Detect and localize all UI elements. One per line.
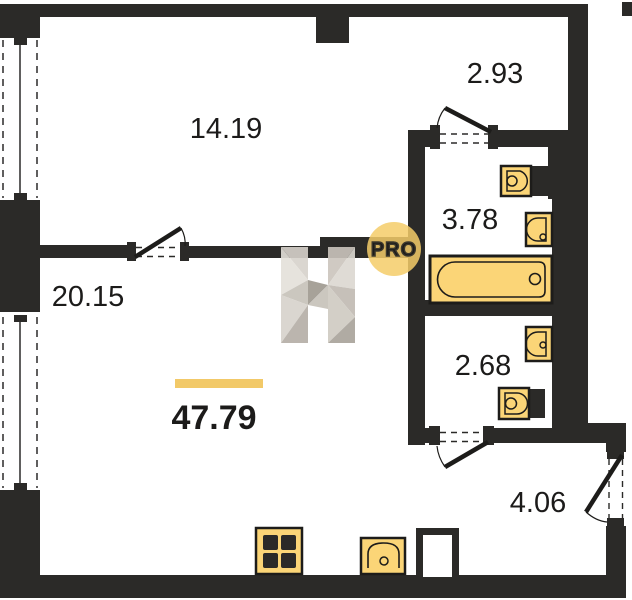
toilet-cistern bbox=[529, 389, 545, 418]
stove-icon bbox=[256, 528, 302, 578]
stove-burner-1 bbox=[263, 535, 278, 550]
bathtub-icon bbox=[430, 256, 552, 303]
wall-bath-inner-a bbox=[548, 147, 568, 199]
wall-top-center-stub bbox=[316, 4, 349, 43]
entry-door-arc bbox=[586, 512, 607, 522]
wall-top-right-stub bbox=[622, 2, 632, 16]
label-living-area: 14.19 bbox=[190, 113, 263, 145]
wall-right-step bbox=[568, 423, 626, 443]
wall-mid-a bbox=[40, 245, 133, 258]
kitchen-sink-icon bbox=[361, 538, 405, 578]
bath-door-leaf bbox=[445, 108, 491, 132]
stove-burner-4 bbox=[281, 553, 296, 568]
total-area-accent-bar bbox=[175, 379, 263, 388]
washbasin-counter bbox=[530, 166, 548, 196]
label-total-area: 47.79 bbox=[171, 399, 256, 437]
label-upper-hall-area: 2.93 bbox=[467, 58, 523, 90]
wall-wc-inner bbox=[552, 316, 568, 428]
wc-sink-icon bbox=[526, 327, 552, 361]
pro-badge-label: PRO bbox=[371, 239, 417, 261]
label-hallway-area: 4.06 bbox=[510, 487, 566, 519]
wall-bottom bbox=[0, 575, 626, 598]
pro-badge: PRO bbox=[367, 222, 421, 276]
entry-door-leaf bbox=[586, 455, 622, 512]
bath-door-opening bbox=[440, 134, 488, 143]
jamb-bath-door-left bbox=[430, 125, 440, 149]
jamb-room-door-left bbox=[127, 242, 136, 261]
window2-tick-top bbox=[14, 315, 27, 322]
shaft-void bbox=[423, 535, 452, 577]
washbasin-icon bbox=[501, 166, 548, 196]
wall-top-left-corner bbox=[0, 4, 40, 38]
wall-wc-bottom-b bbox=[494, 428, 568, 443]
wall-top bbox=[40, 4, 588, 17]
wall-wc-bottom-a bbox=[408, 428, 432, 443]
window2-tick-bottom bbox=[14, 483, 27, 490]
wall-left-middle bbox=[0, 200, 40, 312]
jamb-bath-door-right bbox=[488, 125, 498, 149]
wall-entry-bottom bbox=[606, 526, 626, 577]
label-wc-area: 2.68 bbox=[455, 350, 511, 382]
stove-burner-2 bbox=[281, 535, 296, 550]
jamb-entry-door-bottom bbox=[607, 518, 624, 527]
wc-door-opening bbox=[440, 433, 483, 442]
watermark-h-logo bbox=[281, 247, 355, 343]
window1-tick-top bbox=[14, 38, 27, 45]
floor-plan-svg: PRO 14.19 2.93 3.78 20.15 2.68 4.06 47.7… bbox=[0, 0, 632, 600]
wall-bath-inner-b bbox=[552, 199, 568, 307]
room-door-leaf bbox=[135, 228, 181, 257]
toilet-icon bbox=[499, 388, 545, 419]
label-kitchen-living-area: 20.15 bbox=[52, 281, 125, 313]
label-bathroom-area: 3.78 bbox=[442, 204, 498, 236]
bathroom-sink-icon bbox=[526, 213, 552, 246]
wall-bath-left bbox=[408, 143, 425, 445]
floor-plan-canvas: PRO 14.19 2.93 3.78 20.15 2.68 4.06 47.7… bbox=[0, 0, 632, 600]
wall-right bbox=[568, 4, 588, 443]
jamb-wc-door-left bbox=[429, 426, 440, 445]
stove-burner-3 bbox=[263, 553, 278, 568]
wall-bottom-left-corner bbox=[0, 490, 40, 575]
wall-bath-top-b bbox=[498, 130, 568, 147]
jamb-room-door-right bbox=[180, 242, 189, 261]
window1-tick-bottom bbox=[14, 193, 27, 200]
wc-door-arc bbox=[437, 446, 445, 467]
wc-door-leaf bbox=[445, 442, 488, 467]
ventilation-shaft-icon bbox=[416, 528, 459, 577]
